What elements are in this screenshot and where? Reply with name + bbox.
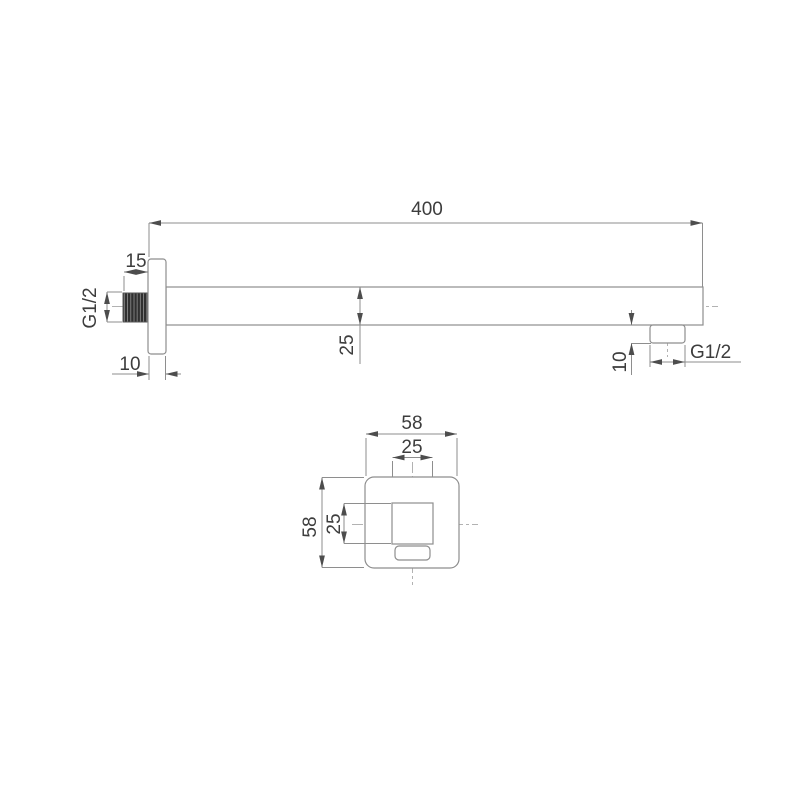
dim-overall-length: 400: [149, 199, 703, 287]
dim-plate-height-label: 58: [300, 516, 321, 537]
dim-outlet-height-label: 10: [610, 351, 631, 372]
side-view: 400 15 G1/2 10 25: [80, 199, 741, 380]
front-view: 58 25 58 25: [300, 413, 478, 585]
dim-arm-height-label: 25: [324, 513, 345, 534]
inlet-thread-nipple: [123, 293, 148, 322]
technical-drawing-canvas: 400 15 G1/2 10 25: [0, 0, 800, 800]
shower-arm-body: [166, 287, 703, 325]
dim-arm-width-label: 25: [401, 437, 422, 458]
dim-plate-thickness: 10: [112, 354, 181, 380]
dim-plate-width: 58: [366, 413, 457, 434]
dim-arm-profile-label: 25: [337, 334, 358, 355]
dim-arm-width: 25: [393, 437, 433, 458]
dim-plate-width-label: 58: [401, 413, 422, 434]
dim-outlet-thread: G1/2: [650, 342, 741, 367]
dim-inlet-thread-label: G1/2: [80, 287, 101, 328]
dim-plate-thickness-label: 10: [119, 354, 140, 375]
dim-inlet-thread: G1/2: [80, 287, 122, 328]
dim-overall-length-label: 400: [411, 199, 443, 220]
dim-outlet-thread-label: G1/2: [690, 342, 731, 363]
wall-flange: [148, 259, 166, 354]
dim-thread-length: 15: [124, 251, 148, 291]
outlet-nub-side: [650, 325, 685, 343]
dim-thread-length-label: 15: [125, 251, 146, 272]
outlet-nub-front: [395, 546, 430, 560]
